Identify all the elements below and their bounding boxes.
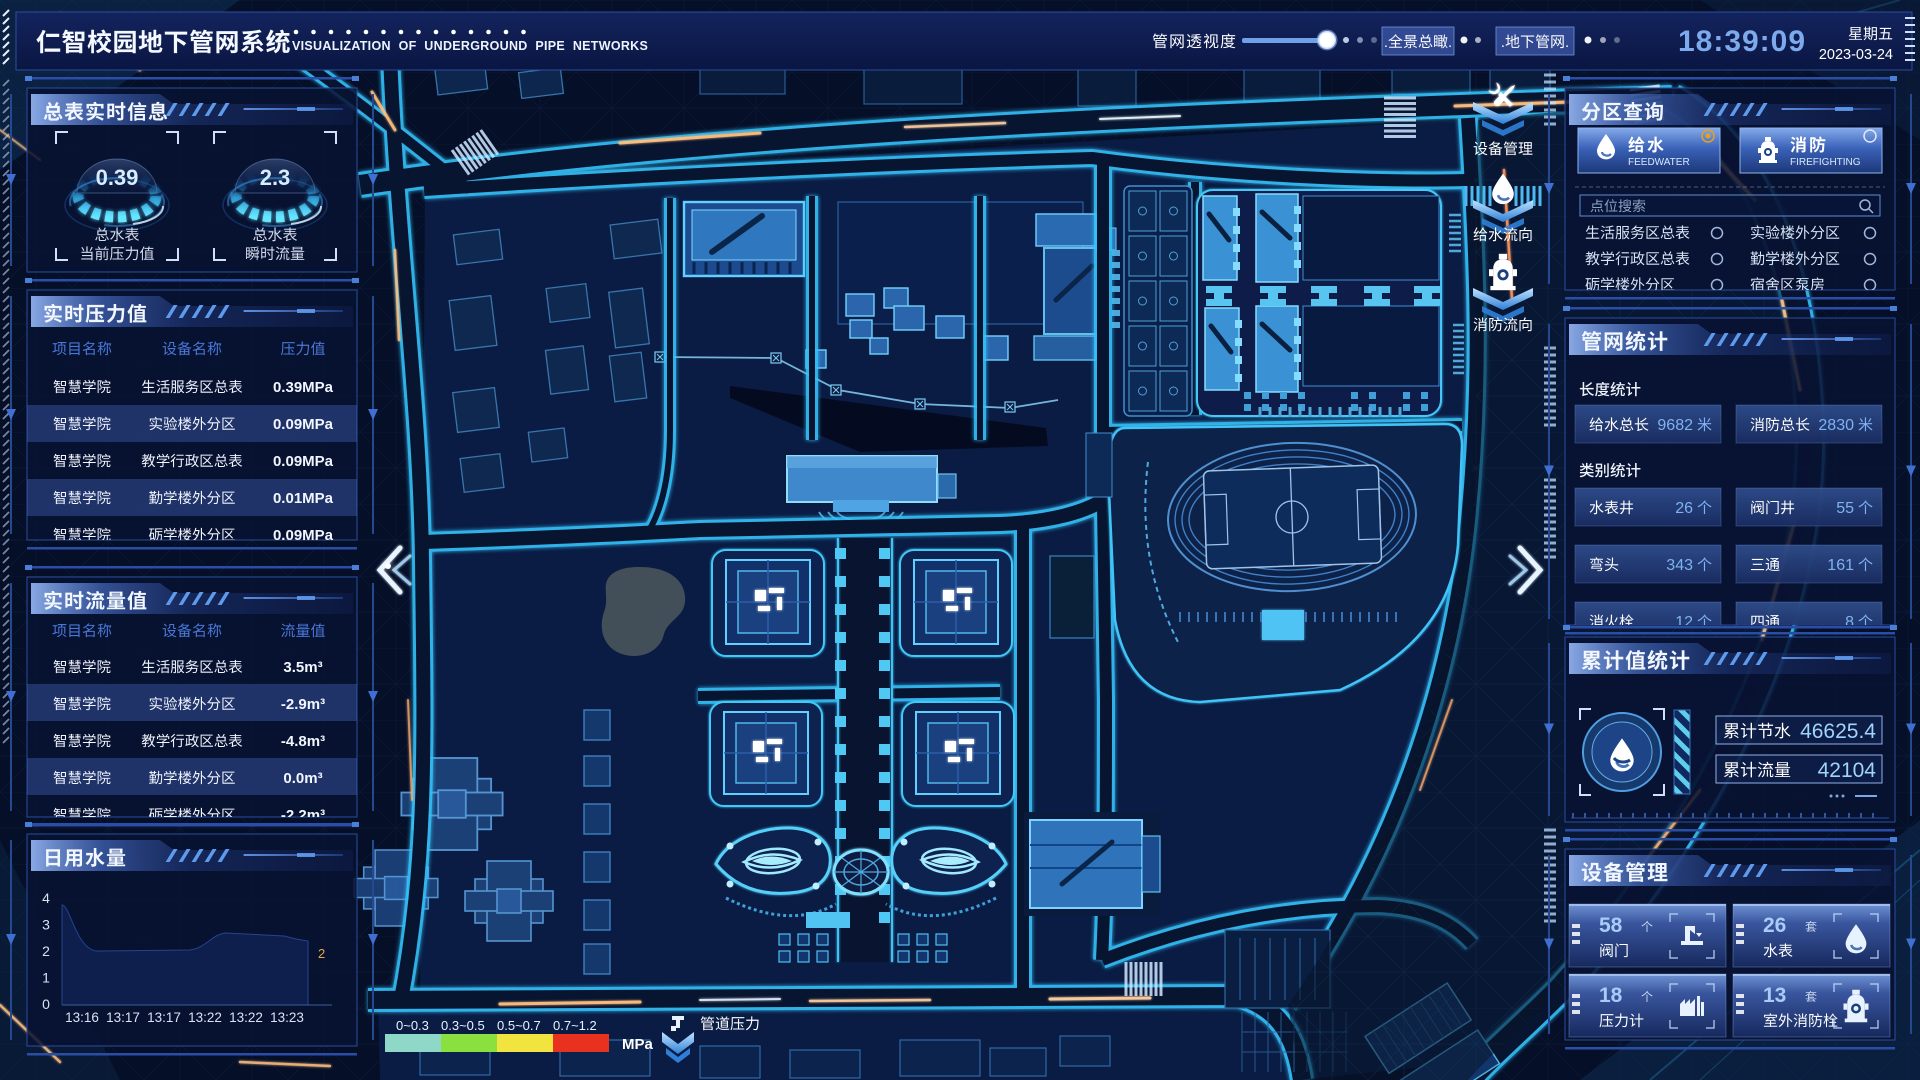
svg-text:18:39:09: 18:39:09: [1678, 25, 1806, 58]
svg-text:13:23: 13:23: [270, 1010, 304, 1025]
svg-text:2: 2: [318, 946, 325, 961]
svg-text:0.3~0.5: 0.3~0.5: [441, 1018, 485, 1033]
svg-text:9682: 9682: [1657, 417, 1693, 434]
svg-text:46625.4: 46625.4: [1800, 720, 1876, 743]
svg-text:0.09MPa: 0.09MPa: [273, 416, 334, 433]
svg-text:0.39: 0.39: [96, 165, 139, 190]
svg-text:13:16: 13:16: [65, 1010, 99, 1025]
svg-text:3.5m³: 3.5m³: [283, 659, 322, 676]
svg-text:0.09MPa: 0.09MPa: [273, 453, 334, 470]
svg-text:13: 13: [1763, 984, 1786, 1007]
svg-text:55: 55: [1836, 500, 1854, 517]
svg-text:MPa: MPa: [622, 1036, 654, 1053]
svg-text:VISUALIZATION OF UNDERGROUND P: VISUALIZATION OF UNDERGROUND PIPE NETWOR…: [292, 39, 648, 53]
svg-text:161: 161: [1827, 557, 1854, 574]
svg-text:2830: 2830: [1818, 417, 1854, 434]
svg-text:58: 58: [1599, 914, 1623, 937]
svg-text:18: 18: [1599, 984, 1623, 1007]
svg-text:FIREFIGHTING: FIREFIGHTING: [1790, 157, 1861, 168]
svg-text:4: 4: [42, 890, 50, 906]
svg-text:0.5~0.7: 0.5~0.7: [497, 1018, 541, 1033]
svg-text:13:17: 13:17: [147, 1010, 181, 1025]
svg-text:0.01MPa: 0.01MPa: [273, 490, 334, 507]
svg-text:-2.9m³: -2.9m³: [281, 696, 325, 713]
svg-text:343: 343: [1666, 557, 1693, 574]
svg-text:3: 3: [42, 917, 50, 933]
svg-text:13:17: 13:17: [106, 1010, 140, 1025]
svg-text:42104: 42104: [1818, 759, 1877, 782]
svg-text:1: 1: [42, 970, 50, 986]
svg-text:-4.8m³: -4.8m³: [281, 733, 325, 750]
svg-text:13:22: 13:22: [229, 1010, 263, 1025]
svg-text:2.3: 2.3: [260, 165, 291, 190]
svg-text:0.39MPa: 0.39MPa: [273, 379, 334, 396]
svg-text:26: 26: [1763, 914, 1786, 937]
svg-text:FEEDWATER: FEEDWATER: [1628, 157, 1690, 168]
svg-text:0~0.3: 0~0.3: [396, 1018, 429, 1033]
svg-text:13:22: 13:22: [188, 1010, 222, 1025]
svg-text:26: 26: [1675, 500, 1693, 517]
svg-text:0: 0: [42, 996, 50, 1012]
svg-text:0.0m³: 0.0m³: [283, 770, 322, 787]
svg-text:2: 2: [42, 943, 50, 959]
svg-text:2023-03-24: 2023-03-24: [1819, 47, 1893, 63]
svg-text:0.7~1.2: 0.7~1.2: [553, 1018, 597, 1033]
